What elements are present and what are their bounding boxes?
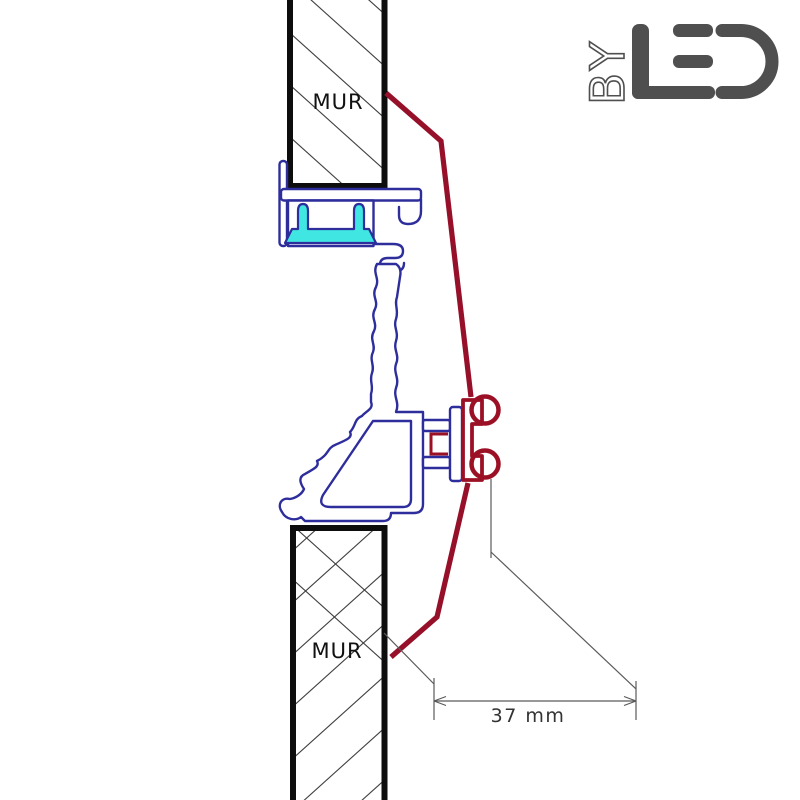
trim-grip-lining bbox=[431, 434, 448, 454]
cross-section-diagram: MUR MUR bbox=[0, 0, 800, 800]
byled-logo: BY bbox=[581, 24, 772, 105]
dimension-leader-right bbox=[491, 552, 636, 689]
t-rail-lower-bar bbox=[423, 457, 450, 468]
profile-hook-upper bbox=[399, 199, 421, 224]
trim-clip-assembly bbox=[386, 93, 499, 657]
logo-letter-d bbox=[722, 31, 772, 93]
logo-led-glyphs bbox=[632, 24, 772, 99]
profile-left-flange bbox=[280, 161, 288, 246]
technical-drawing-canvas: MUR MUR bbox=[0, 0, 800, 800]
t-rail-upper-bar bbox=[423, 420, 450, 431]
dimension-label: 37 mm bbox=[491, 705, 566, 727]
logo-letter-e-mid bbox=[673, 55, 713, 68]
logo-by-text: BY bbox=[581, 37, 636, 105]
logo-letter-l-foot bbox=[632, 86, 715, 99]
profile-top-plate bbox=[281, 189, 421, 201]
wall-top-label: MUR bbox=[312, 90, 363, 114]
logo-letter-e-top bbox=[673, 24, 713, 37]
wall-bottom-label: MUR bbox=[311, 639, 362, 663]
t-rail-vertical-bar bbox=[450, 407, 462, 481]
dimension-annotation bbox=[384, 479, 636, 720]
wall-bottom-body bbox=[293, 528, 385, 800]
